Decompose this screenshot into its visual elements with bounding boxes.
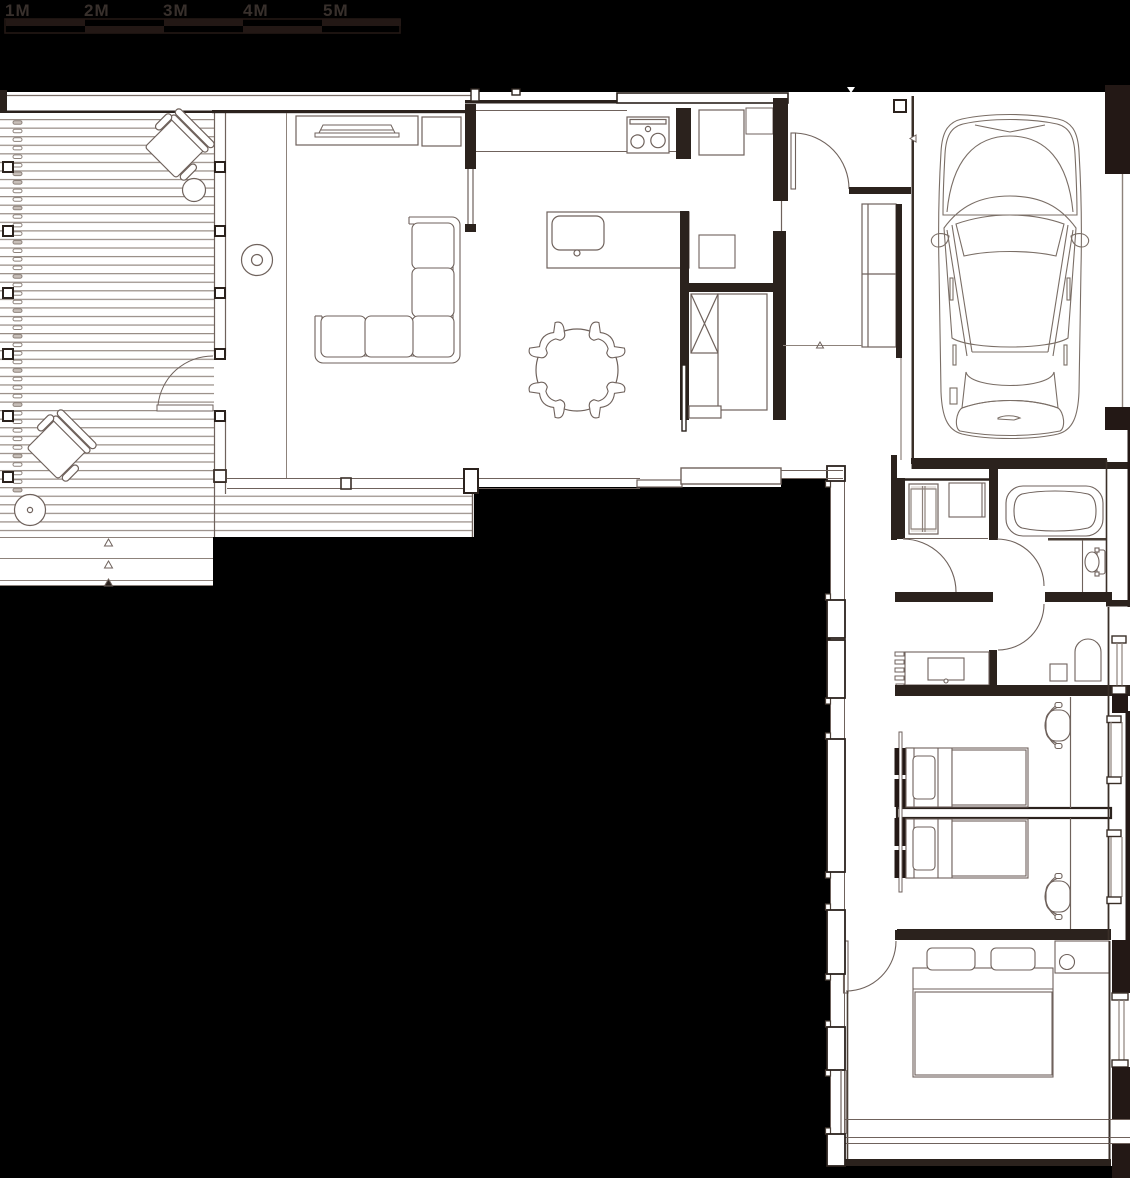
svg-text:4M: 4M xyxy=(243,1,269,20)
svg-text:2M: 2M xyxy=(84,1,110,20)
svg-text:3M: 3M xyxy=(163,1,189,20)
svg-text:1M: 1M xyxy=(5,1,31,20)
svg-text:5M: 5M xyxy=(323,1,349,20)
